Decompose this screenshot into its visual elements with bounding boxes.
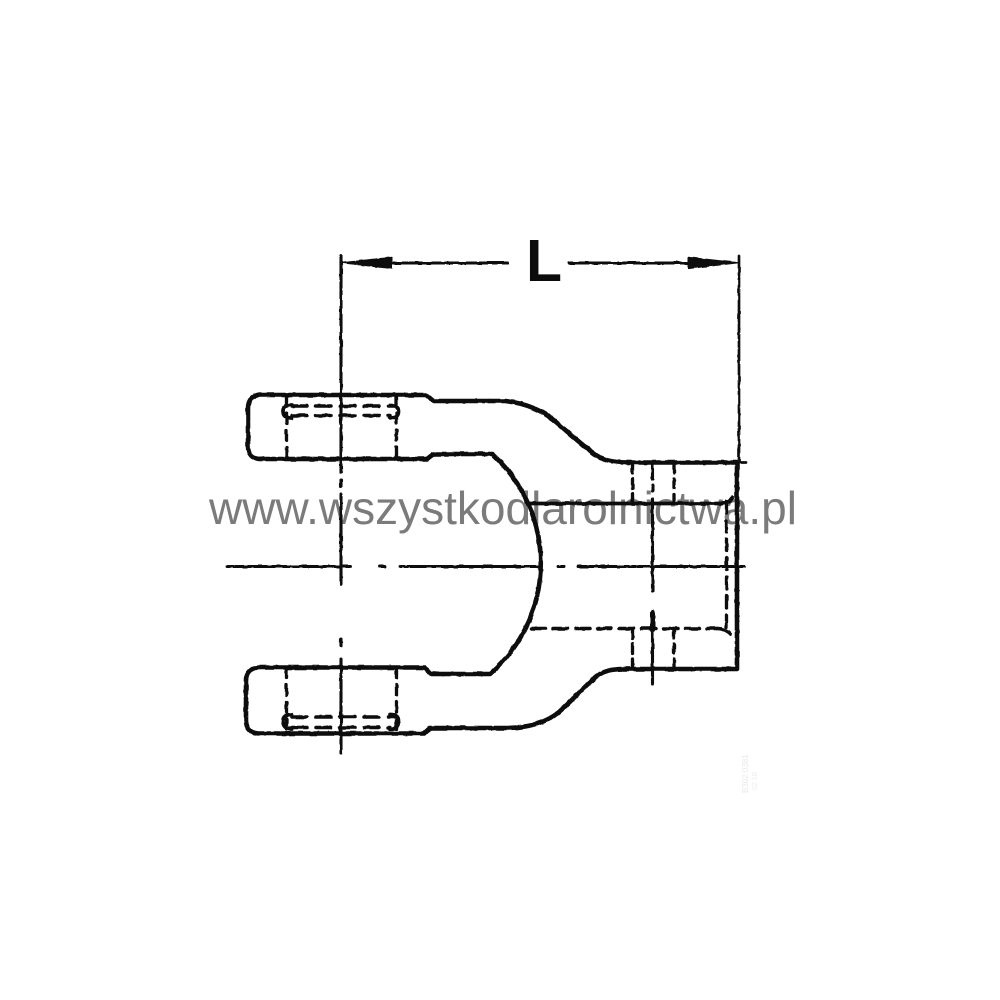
svg-text:L: L	[526, 228, 562, 294]
svg-text:B302 0381: B302 0381	[741, 754, 750, 793]
svg-text:02 1B: 02 1B	[752, 771, 759, 790]
svg-text:www.wszystkodlarolnictwa.pl: www.wszystkodlarolnictwa.pl	[208, 482, 797, 534]
